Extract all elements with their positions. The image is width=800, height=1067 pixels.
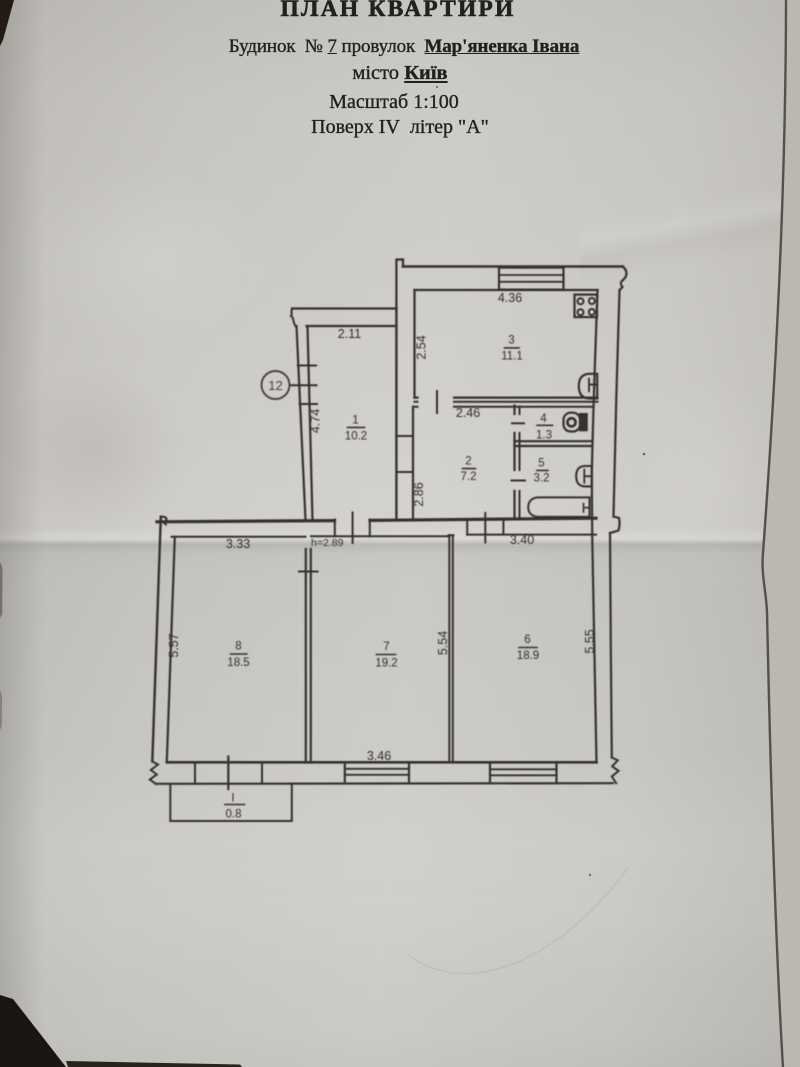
svg-text:h=2.89: h=2.89 [311,537,344,549]
svg-text:5.55: 5.55 [583,629,597,653]
svg-text:18.5: 18.5 [227,657,249,669]
svg-text:8: 8 [235,641,241,653]
svg-text:4.36: 4.36 [498,291,522,305]
svg-text:3.46: 3.46 [367,749,391,763]
svg-text:12: 12 [268,378,282,393]
svg-text:3: 3 [508,335,514,347]
svg-text:2: 2 [465,456,471,468]
svg-text:5: 5 [538,458,544,470]
svg-text:2.11: 2.11 [338,327,361,341]
svg-text:19.2: 19.2 [375,658,397,670]
svg-text:11.1: 11.1 [501,351,523,363]
svg-text:1: 1 [352,415,358,427]
svg-text:5.54: 5.54 [436,631,450,655]
svg-text:3.2: 3.2 [534,473,550,485]
svg-text:2.86: 2.86 [412,482,426,506]
svg-text:0.8: 0.8 [226,809,242,821]
svg-text:2.46: 2.46 [456,406,480,420]
svg-text:7: 7 [383,641,389,653]
svg-text:3.33: 3.33 [226,537,250,551]
svg-text:4.74: 4.74 [309,409,323,433]
svg-text:2.54: 2.54 [415,335,429,359]
svg-text:3.40: 3.40 [510,533,534,547]
svg-text:І: І [231,793,234,805]
svg-text:4: 4 [540,413,547,425]
svg-text:5.57: 5.57 [167,633,181,657]
svg-text:6: 6 [524,634,530,646]
svg-text:7.2: 7.2 [461,471,477,483]
svg-text:1.3: 1.3 [536,430,552,442]
svg-text:18.9: 18.9 [517,650,539,662]
svg-text:10.2: 10.2 [345,431,367,443]
